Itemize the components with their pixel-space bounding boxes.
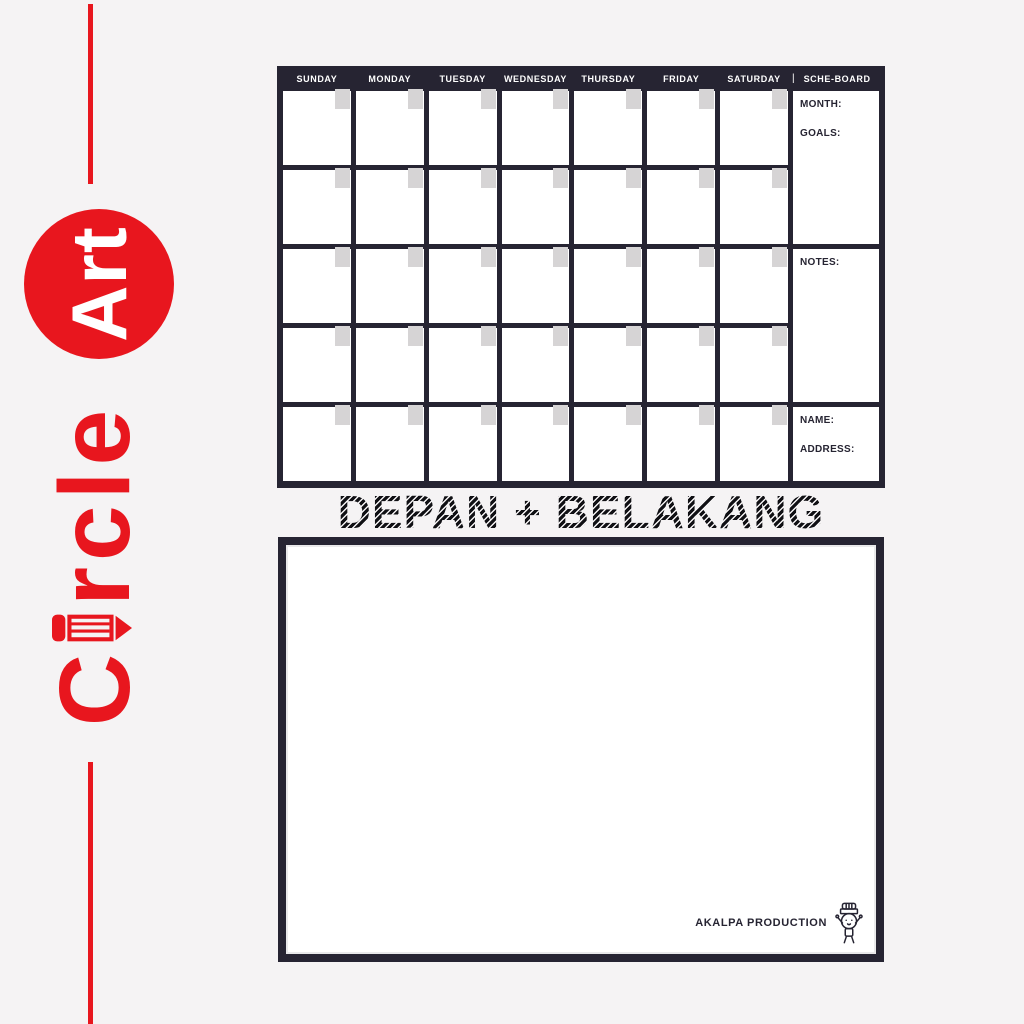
sticky-tab [481, 168, 496, 188]
day-header-wednesday: WEDNESDAY [502, 74, 570, 84]
calendar-day-cell [502, 249, 570, 323]
calendar-day-cell [429, 249, 497, 323]
sticky-tab [481, 247, 496, 267]
brand-line-bottom [88, 762, 93, 1024]
sticky-tab [626, 89, 641, 109]
calendar-day-cell [356, 170, 424, 244]
notes-panel: NOTES: [793, 249, 879, 402]
day-header-saturday: SATURDAY [720, 74, 788, 84]
sticky-tab [481, 326, 496, 346]
calendar-day-cell [720, 170, 788, 244]
calendar-day-cell [647, 407, 715, 481]
calendar-day-cell [647, 328, 715, 402]
sticky-tab [335, 168, 350, 188]
brand-wordmark: C rcle [15, 382, 175, 748]
pencil-icon [52, 610, 132, 646]
brand-line-top [88, 4, 93, 184]
calendar-day-cell [283, 249, 351, 323]
calendar-day-cell [502, 170, 570, 244]
calendar-day-cell [502, 91, 570, 165]
sticky-tab [481, 405, 496, 425]
calendar-day-cell [356, 328, 424, 402]
calendar-day-cell [574, 407, 642, 481]
sticky-tab [553, 326, 568, 346]
sticky-tab [481, 89, 496, 109]
calendar-day-cell [720, 91, 788, 165]
sticky-tab [626, 247, 641, 267]
sticky-tab [553, 405, 568, 425]
calendar-day-cell [574, 91, 642, 165]
sticky-tab [408, 247, 423, 267]
mascot-icon [834, 900, 864, 946]
day-header-tuesday: TUESDAY [429, 74, 497, 84]
name-label: NAME: [800, 415, 872, 426]
brand-circle-badge: Art [24, 209, 174, 359]
notes-label: NOTES: [800, 257, 872, 268]
calendar-day-cell [574, 249, 642, 323]
sticky-tab [626, 326, 641, 346]
calendar-day-cell [574, 170, 642, 244]
calendar-day-cell [647, 249, 715, 323]
sticky-tab [335, 89, 350, 109]
brand-wordmark-rotated: C rcle [15, 382, 175, 748]
calendar-day-cell [720, 249, 788, 323]
sticky-tab [699, 89, 714, 109]
calendar-day-cell [283, 407, 351, 481]
sticky-tab [772, 168, 787, 188]
calendar-day-cell [356, 91, 424, 165]
brand-word-start: C [38, 648, 153, 726]
blank-whiteboard: AKALPA PRODUCTION [278, 537, 884, 962]
calendar-day-cell [720, 407, 788, 481]
schedule-board: SUNDAY MONDAY TUESDAY WEDNESDAY THURSDAY… [277, 66, 885, 488]
calendar-header: SUNDAY MONDAY TUESDAY WEDNESDAY THURSDAY… [283, 66, 879, 91]
calendar-day-cell [283, 91, 351, 165]
sticky-tab [408, 168, 423, 188]
calendar-day-cell [502, 328, 570, 402]
sticky-tab [772, 326, 787, 346]
producer-credit-text: AKALPA PRODUCTION [695, 917, 827, 929]
sticky-tab [553, 168, 568, 188]
caption-row: DEPAN + BELAKANG [277, 487, 885, 537]
calendar-day-cell [574, 328, 642, 402]
sticky-tab [335, 405, 350, 425]
sticky-tab [772, 247, 787, 267]
day-header-monday: MONDAY [356, 74, 424, 84]
front-back-caption: DEPAN + BELAKANG [338, 485, 825, 539]
calendar-day-cell [647, 170, 715, 244]
sticky-tab [335, 247, 350, 267]
day-header-sunday: SUNDAY [283, 74, 351, 84]
calendar-day-cell [283, 170, 351, 244]
day-header-friday: FRIDAY [647, 74, 715, 84]
calendar-day-cell [429, 407, 497, 481]
sticky-tab [335, 326, 350, 346]
sticky-tab [626, 405, 641, 425]
calendar-day-cell [356, 249, 424, 323]
goals-label: GOALS: [800, 128, 872, 139]
calendar-day-cell [720, 328, 788, 402]
sticky-tab [699, 247, 714, 267]
calendar-day-cell [429, 91, 497, 165]
month-goals-panel: MONTH: GOALS: [793, 91, 879, 244]
sticky-tab [408, 326, 423, 346]
sticky-tab [699, 168, 714, 188]
sticky-tab [772, 89, 787, 109]
calendar-day-cell [283, 328, 351, 402]
sticky-tab [553, 247, 568, 267]
sticky-tab [408, 405, 423, 425]
brand-word-end: rcle [38, 404, 153, 606]
board-title-cell: | SCHE-BOARD [793, 73, 879, 84]
calendar-day-cell [429, 170, 497, 244]
name-address-panel: NAME: ADDRESS: [793, 407, 879, 481]
sticky-tab [699, 326, 714, 346]
address-label: ADDRESS: [800, 444, 872, 455]
calendar-day-cell [647, 91, 715, 165]
calendar-grid: MONTH: GOALS: NOTES: NAME: ADDRESS: [283, 91, 879, 481]
calendar-day-cell [356, 407, 424, 481]
board-title: SCHE-BOARD [795, 74, 879, 84]
sticky-tab [772, 405, 787, 425]
sticky-tab [626, 168, 641, 188]
sticky-tab [408, 89, 423, 109]
calendar-day-cell [502, 407, 570, 481]
brand-circle-word: Art [24, 209, 174, 359]
sticky-tab [553, 89, 568, 109]
sticky-tab [699, 405, 714, 425]
calendar-day-cell [429, 328, 497, 402]
producer-credit: AKALPA PRODUCTION [695, 900, 864, 946]
month-label: MONTH: [800, 99, 872, 110]
day-header-thursday: THURSDAY [574, 74, 642, 84]
